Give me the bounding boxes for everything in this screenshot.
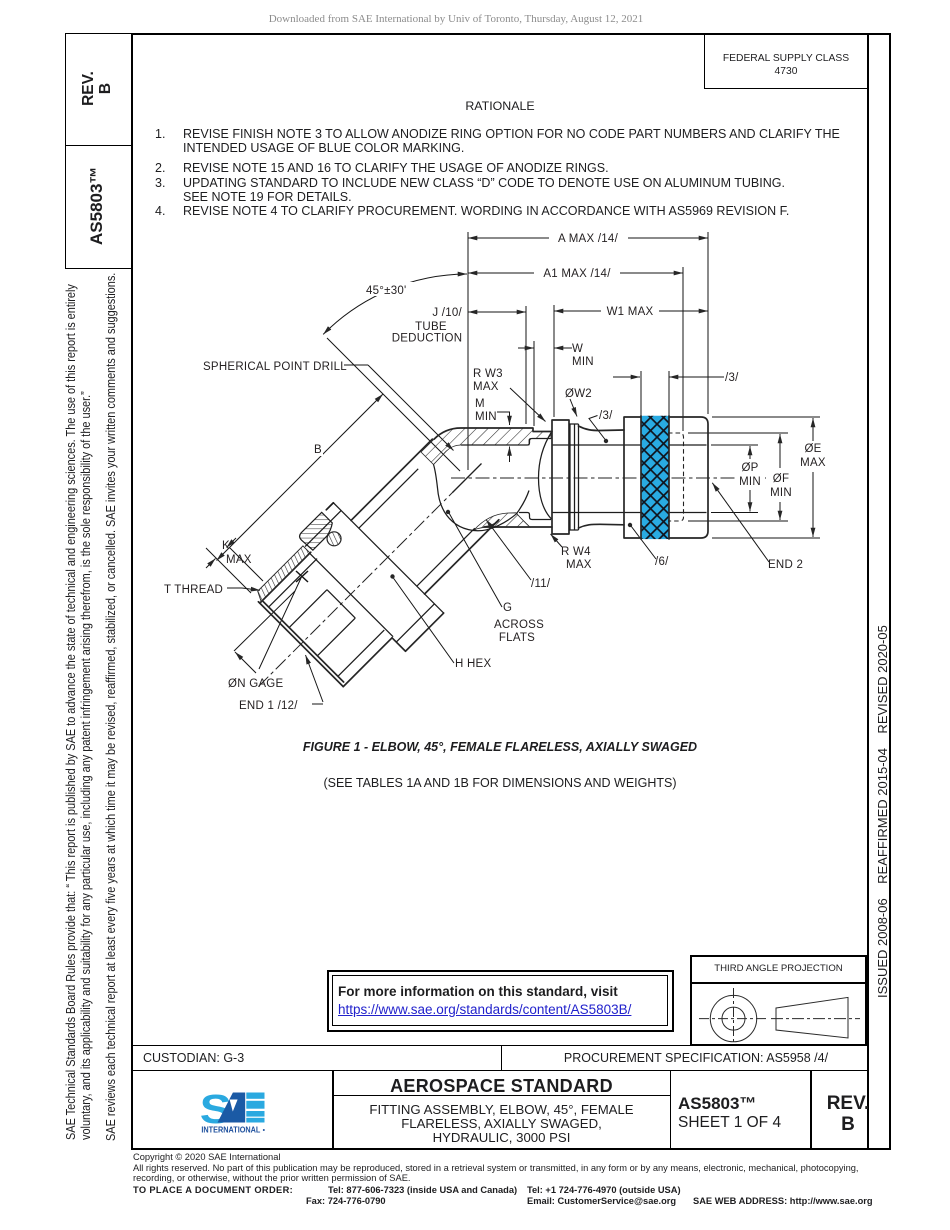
svg-text:MAX: MAX [800, 457, 826, 469]
svg-text:MAX: MAX [566, 559, 592, 571]
svg-text:/11/: /11/ [531, 578, 551, 590]
svg-text:MIN: MIN [770, 487, 792, 499]
svg-text:/6/: /6/ [655, 556, 669, 568]
svg-text:R W4: R W4 [561, 546, 591, 558]
svg-text:A1 MAX /14/: A1 MAX /14/ [543, 268, 611, 280]
svg-text:INTERNATIONAL: INTERNATIONAL [201, 1125, 260, 1135]
svg-text:ØP: ØP [741, 462, 758, 474]
svg-text:R W3: R W3 [473, 368, 503, 380]
svg-text:G: G [503, 602, 512, 614]
svg-text:T THREAD: T THREAD [164, 584, 223, 596]
svg-text:TUBE: TUBE [415, 321, 447, 333]
svg-text:ØE: ØE [804, 443, 821, 455]
svg-text:W1 MAX: W1 MAX [607, 306, 654, 318]
svg-text:/3/: /3/ [725, 372, 739, 384]
svg-text:ØW2: ØW2 [565, 388, 592, 400]
svg-text:B: B [314, 444, 322, 456]
svg-text:ØF: ØF [773, 473, 789, 485]
svg-text:MAX: MAX [473, 381, 499, 393]
svg-text:A MAX /14/: A MAX /14/ [558, 233, 619, 245]
svg-text:45°±30': 45°±30' [366, 285, 406, 297]
svg-text:MAX: MAX [226, 554, 252, 566]
svg-text:MIN: MIN [739, 476, 761, 488]
svg-text:END 1 /12/: END 1 /12/ [239, 700, 298, 712]
svg-text:DEDUCTION: DEDUCTION [392, 333, 463, 345]
svg-text:W: W [572, 343, 583, 355]
svg-text:K: K [222, 540, 230, 552]
svg-text:M: M [475, 398, 485, 410]
svg-text:ØN GAGE: ØN GAGE [228, 678, 284, 690]
svg-text:SPHERICAL POINT DRILL: SPHERICAL POINT DRILL [203, 361, 347, 373]
svg-text:ACROSS: ACROSS [494, 619, 544, 631]
svg-text:H HEX: H HEX [455, 658, 491, 670]
svg-text:/3/: /3/ [599, 410, 613, 422]
svg-text:FLATS: FLATS [499, 632, 535, 644]
svg-text:J /10/: J /10/ [432, 307, 462, 319]
svg-text:MIN: MIN [475, 411, 497, 423]
svg-text:END 2: END 2 [768, 559, 803, 571]
svg-text:MIN: MIN [572, 356, 594, 368]
